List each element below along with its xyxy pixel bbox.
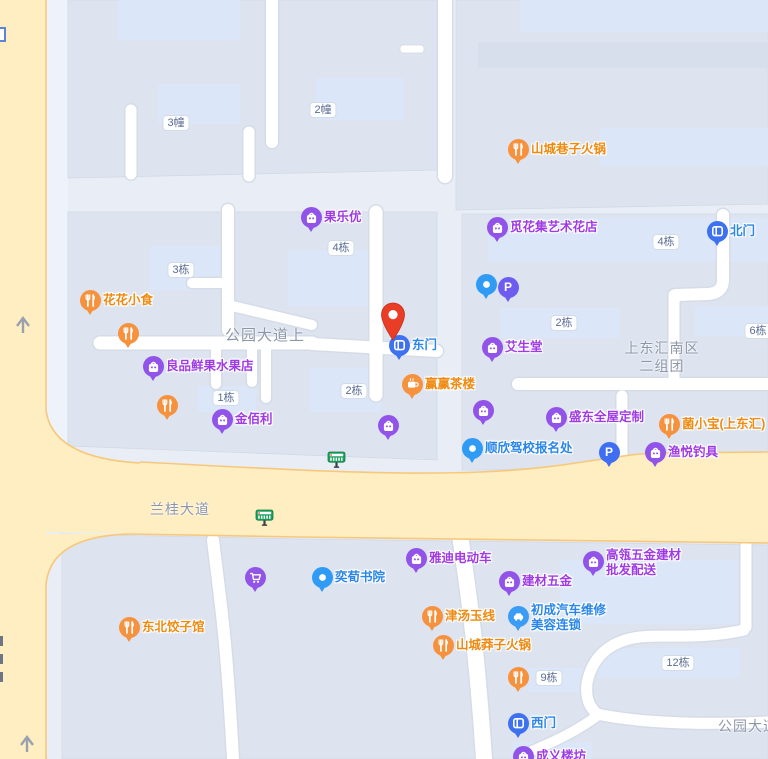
- shop-bag-icon[interactable]: [499, 571, 520, 592]
- shop-bag-icon[interactable]: [645, 442, 666, 463]
- poi-label[interactable]: 雅迪电动车: [429, 550, 492, 566]
- poi-label[interactable]: 金佰利: [235, 411, 273, 427]
- basemap-tiles: [0, 0, 768, 759]
- poi-label[interactable]: 高瓴五金建材批发配送: [606, 548, 681, 577]
- shop-bag-icon[interactable]: [482, 337, 503, 358]
- restaurant-icon[interactable]: [508, 139, 529, 160]
- poi-label[interactable]: 津汤玉线: [445, 608, 495, 624]
- building-badge: 4栋: [327, 240, 354, 256]
- shop-bag-icon[interactable]: [583, 551, 604, 572]
- building-badge: 1栋: [212, 390, 239, 406]
- building-badge: 12栋: [661, 655, 694, 671]
- poi-label[interactable]: 山城莽子火锅: [456, 637, 531, 653]
- gate-icon[interactable]: [508, 713, 529, 734]
- shop-bag-icon[interactable]: [487, 217, 508, 238]
- poi-label[interactable]: 初成汽车维修美容连锁: [531, 603, 606, 632]
- restaurant-icon[interactable]: [118, 323, 139, 344]
- poi-label[interactable]: 果乐优: [324, 209, 362, 225]
- poi-label[interactable]: 成义楼坊: [536, 748, 586, 759]
- poi-label[interactable]: 菌小宝(上东汇): [682, 416, 765, 432]
- building-badge: 2栋: [340, 383, 367, 399]
- restaurant-icon[interactable]: [119, 617, 140, 638]
- shop-bag-icon[interactable]: [513, 746, 534, 759]
- poi-label[interactable]: 奕荀书院: [335, 569, 385, 585]
- map-canvas[interactable]: 公园大道上兰桂大道公园大道上东汇南区二组团 3幢2幢4栋4栋3栋2栋1栋2栋6栋…: [0, 0, 768, 759]
- bus-stop-icon[interactable]: [327, 451, 346, 474]
- teacup-icon[interactable]: [402, 374, 423, 395]
- poi-label[interactable]: 西门: [531, 715, 556, 731]
- building-badge: 3栋: [167, 262, 194, 278]
- road-name-label: 兰桂大道: [150, 499, 210, 519]
- road-name-label: 公园大道上: [225, 324, 305, 345]
- poi-label[interactable]: 花花小食: [103, 292, 153, 308]
- poi-label[interactable]: 盛东全屋定制: [569, 409, 644, 425]
- destination-pin: [380, 302, 406, 347]
- restaurant-icon[interactable]: [508, 667, 529, 688]
- cart-icon[interactable]: [245, 567, 266, 588]
- building-badge: 2栋: [550, 315, 577, 331]
- building-badge: 6栋: [744, 323, 768, 339]
- shop-bag-icon[interactable]: [546, 407, 567, 428]
- road-name-label: 公园大道: [718, 716, 768, 736]
- dot-icon[interactable]: [312, 567, 333, 588]
- building-badge: 4栋: [652, 234, 679, 250]
- poi-label[interactable]: 渔悦钓具: [668, 444, 718, 460]
- shop-bag-icon[interactable]: [212, 409, 233, 430]
- poi-label[interactable]: 赢赢茶楼: [425, 376, 475, 392]
- restaurant-icon[interactable]: [422, 606, 443, 627]
- restaurant-icon[interactable]: [433, 635, 454, 656]
- shop-bag-icon[interactable]: [143, 356, 164, 377]
- poi-label[interactable]: 良品鲜果水果店: [166, 358, 254, 374]
- poi-label[interactable]: 艾生堂: [505, 339, 543, 355]
- bus-stop-icon[interactable]: [255, 509, 274, 532]
- poi-label[interactable]: 北门: [730, 223, 755, 239]
- dot-icon[interactable]: [476, 274, 497, 295]
- building-badge: 3幢: [162, 115, 189, 131]
- poi-label[interactable]: 山城巷子火锅: [531, 141, 606, 157]
- restaurant-icon[interactable]: [80, 290, 101, 311]
- shop-bag-icon[interactable]: [406, 548, 427, 569]
- parking-icon[interactable]: P: [498, 277, 519, 298]
- poi-label[interactable]: 建材五金: [522, 573, 572, 589]
- shop-bag-icon[interactable]: [473, 400, 494, 421]
- building-badge: 9栋: [535, 670, 562, 686]
- poi-label[interactable]: 顺欣驾校报名处: [485, 440, 573, 456]
- dot-icon[interactable]: [462, 438, 483, 459]
- shop-bag-icon[interactable]: [301, 207, 322, 228]
- poi-label[interactable]: 觅花集艺术花店: [510, 219, 598, 235]
- area-name-label: 上东汇南区二组团: [625, 339, 700, 375]
- car-icon[interactable]: [508, 606, 529, 627]
- poi-label[interactable]: 东门: [412, 337, 437, 353]
- restaurant-icon[interactable]: [157, 395, 178, 416]
- building-badge: 2幢: [309, 102, 336, 118]
- gate-icon[interactable]: [707, 221, 728, 242]
- restaurant-icon[interactable]: [659, 414, 680, 435]
- poi-label[interactable]: 东北饺子馆: [142, 619, 205, 635]
- parking-icon[interactable]: P: [599, 442, 620, 463]
- shop-bag-icon[interactable]: [378, 415, 399, 436]
